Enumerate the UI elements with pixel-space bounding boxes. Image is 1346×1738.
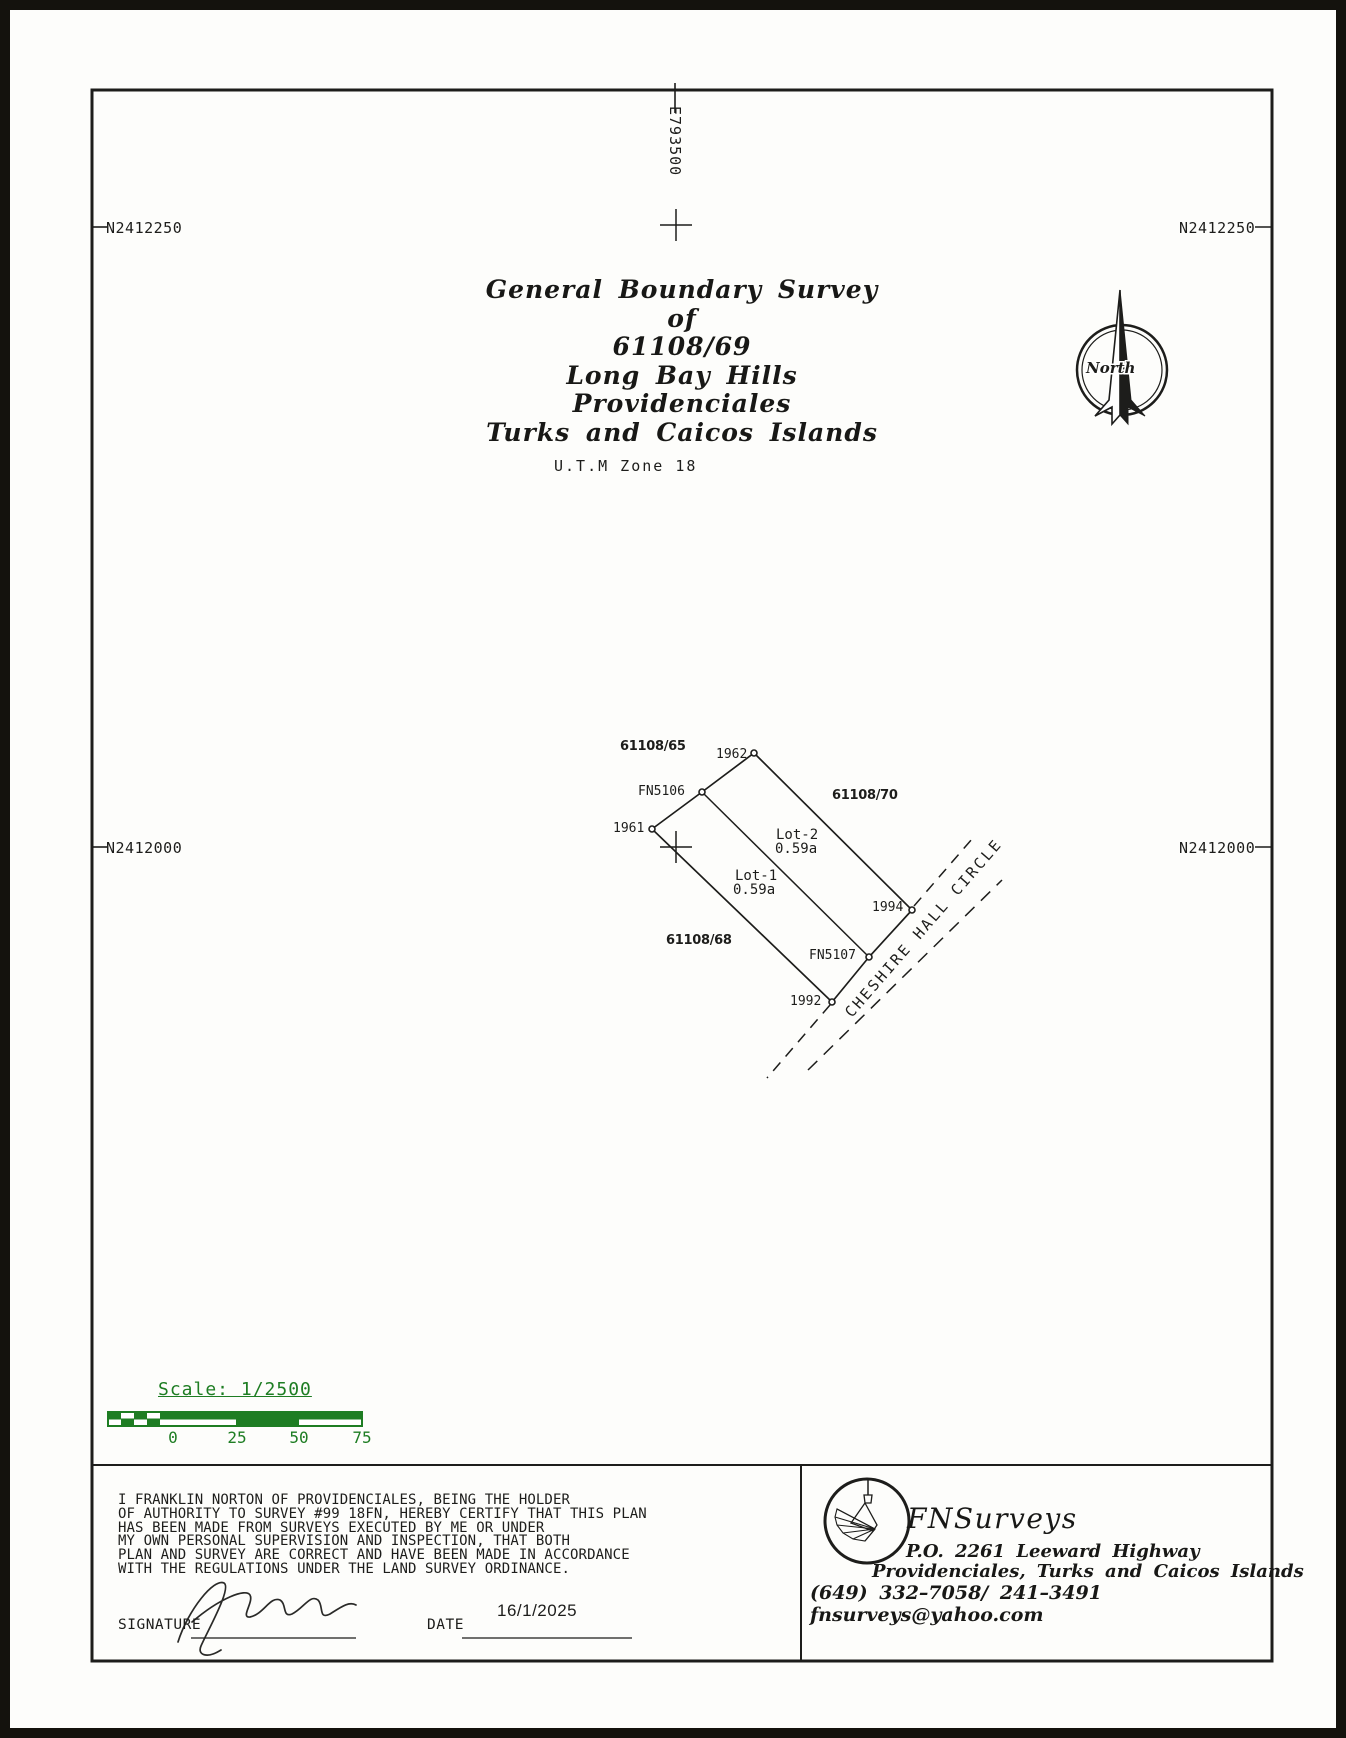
firm-phone: (649) 332–7058/ 241–3491 [810, 1582, 1102, 1604]
firm-location: Providenciales, Turks and Caicos Islands [872, 1561, 1304, 1582]
signature-scribble [178, 1582, 356, 1655]
certification-line: WITH THE REGULATIONS UNDER THE LAND SURV… [118, 1563, 647, 1577]
survey-point-label: 1961 [613, 821, 644, 836]
scale-title: Scale: 1/2500 [158, 1379, 312, 1400]
firm-po-box: P.O. 2261 Leeward Highway [906, 1541, 1200, 1562]
road-far-edge-dashed [808, 880, 1002, 1070]
title-line: 61108/69 [92, 333, 1272, 362]
survey-point-label: FN5106 [638, 784, 685, 799]
survey-point-marker [699, 789, 705, 795]
road-near-edge-dashed-lower [767, 1005, 830, 1078]
scale-tick-label: 50 [284, 1428, 314, 1447]
scale-tick-label: 0 [158, 1428, 188, 1447]
utm-zone-label: U.T.M Zone 18 [554, 457, 697, 475]
certification-text: I FRANKLIN NORTON OF PROVIDENCIALES, BEI… [118, 1494, 647, 1577]
date-label: DATE [427, 1617, 464, 1633]
survey-point-label: 1994 [872, 900, 903, 915]
scale-bar [108, 1412, 362, 1426]
northing-label-se: N2412000 [1179, 839, 1255, 857]
adjacent-parcel-label: 61108/65 [620, 739, 686, 754]
plumb-bob-icon [825, 1479, 909, 1563]
grid-cross-upper [660, 209, 692, 241]
lot2-area: 0.59a [775, 841, 817, 857]
grid-cross-lower [660, 831, 692, 863]
adjacent-parcel-label: 61108/68 [666, 933, 732, 948]
survey-plan-page: North [0, 0, 1346, 1738]
title-line: Turks and Caicos Islands [92, 419, 1272, 448]
title-line: Providenciales [92, 390, 1272, 419]
survey-point-label: 1962 [716, 747, 747, 762]
northing-label-ne: N2412250 [1179, 219, 1255, 237]
survey-point-marker [829, 999, 835, 1005]
northing-label-sw: N2412000 [106, 839, 182, 857]
survey-point-label: FN5107 [809, 948, 856, 963]
signature-label: SIGNATURE [118, 1617, 201, 1633]
title-line: of [92, 305, 1272, 334]
survey-point-marker [866, 954, 872, 960]
firm-email: fnsurveys@yahoo.com [810, 1604, 1044, 1626]
title-line: Long Bay Hills [92, 362, 1272, 391]
firm-name: FNSurveys [907, 1502, 1078, 1535]
adjacent-parcel-label: 61108/70 [832, 788, 898, 803]
title-block: General Boundary Survey of 61108/69 Long… [92, 276, 1272, 447]
title-line: General Boundary Survey [92, 276, 1272, 305]
easting-label: E793500 [666, 106, 684, 176]
survey-point-marker [909, 907, 915, 913]
scale-tick-label: 75 [347, 1428, 377, 1447]
plan-linework: North [10, 10, 1346, 1738]
date-value: 16/1/2025 [497, 1601, 577, 1621]
survey-point-marker [751, 750, 757, 756]
survey-point-label: 1992 [790, 994, 821, 1009]
survey-point-marker [649, 826, 655, 832]
lot1-area: 0.59a [733, 882, 775, 898]
scale-tick-label: 25 [222, 1428, 252, 1447]
northing-label-nw: N2412250 [106, 219, 182, 237]
